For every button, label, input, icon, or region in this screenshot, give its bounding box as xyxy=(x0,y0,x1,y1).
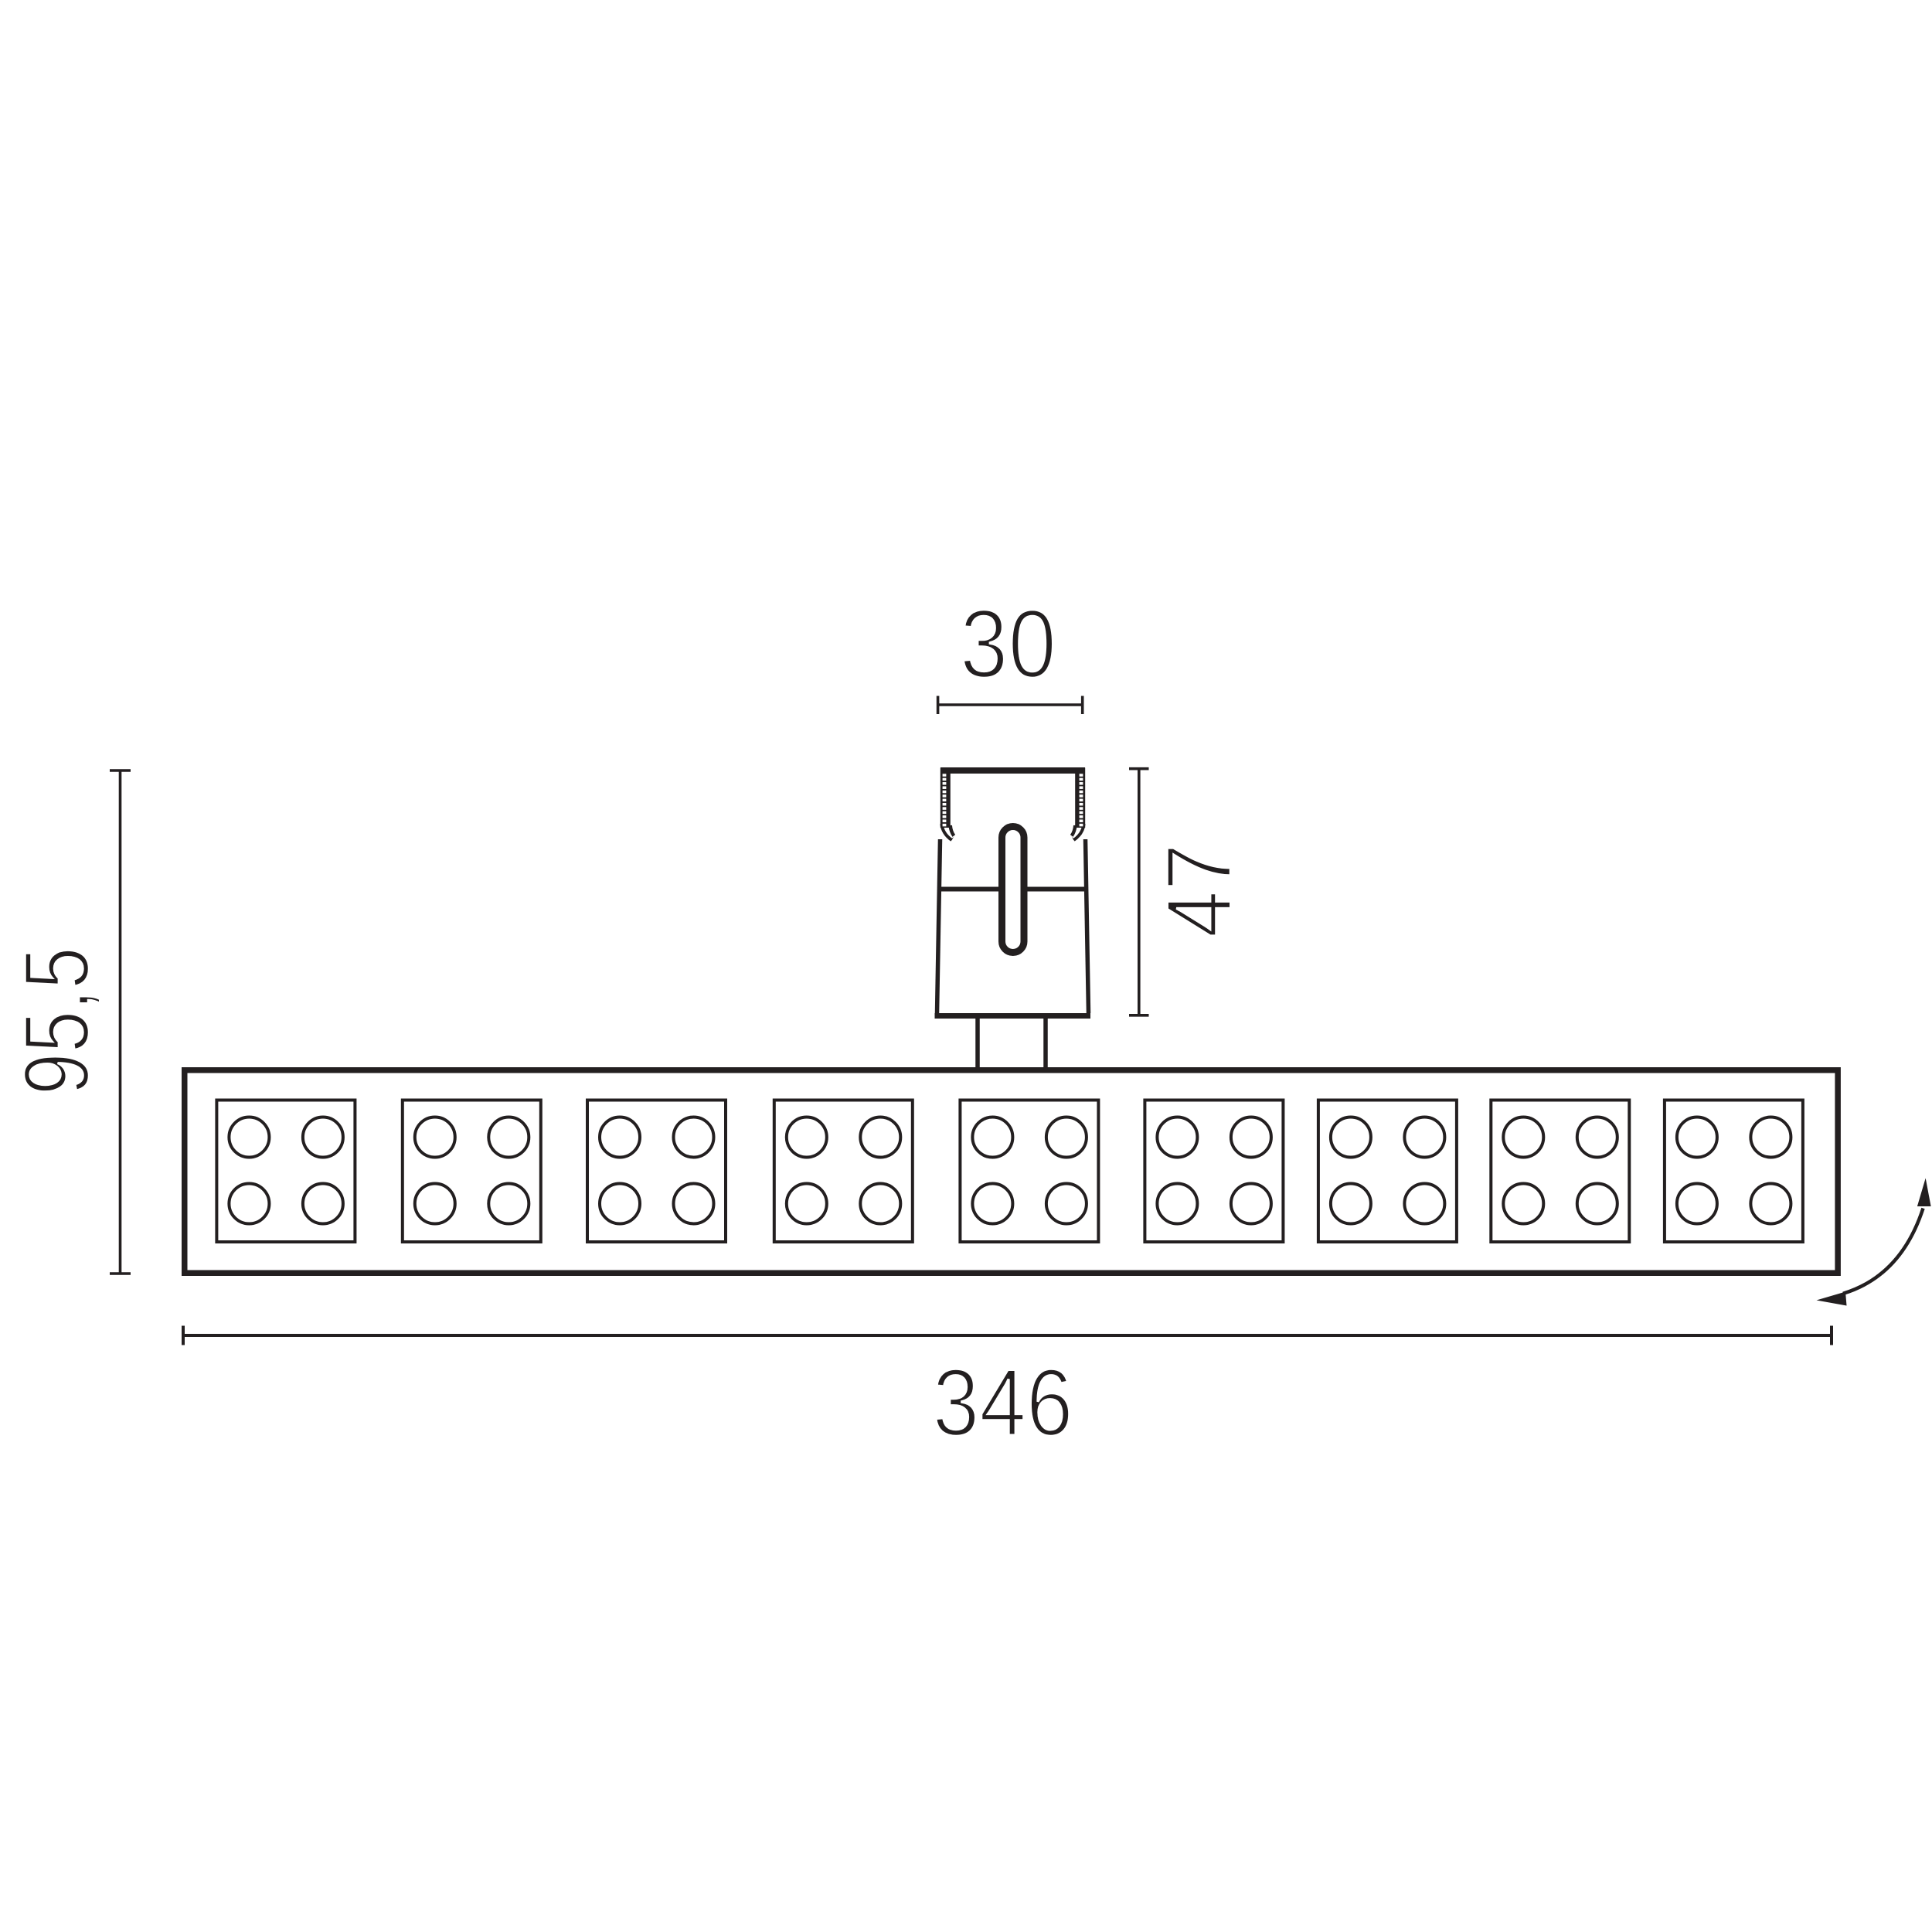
svg-text:30: 30 xyxy=(960,591,1056,699)
svg-text:346: 346 xyxy=(933,1350,1073,1456)
svg-text:47: 47 xyxy=(1148,844,1251,938)
svg-text:95,5: 95,5 xyxy=(5,947,108,1095)
